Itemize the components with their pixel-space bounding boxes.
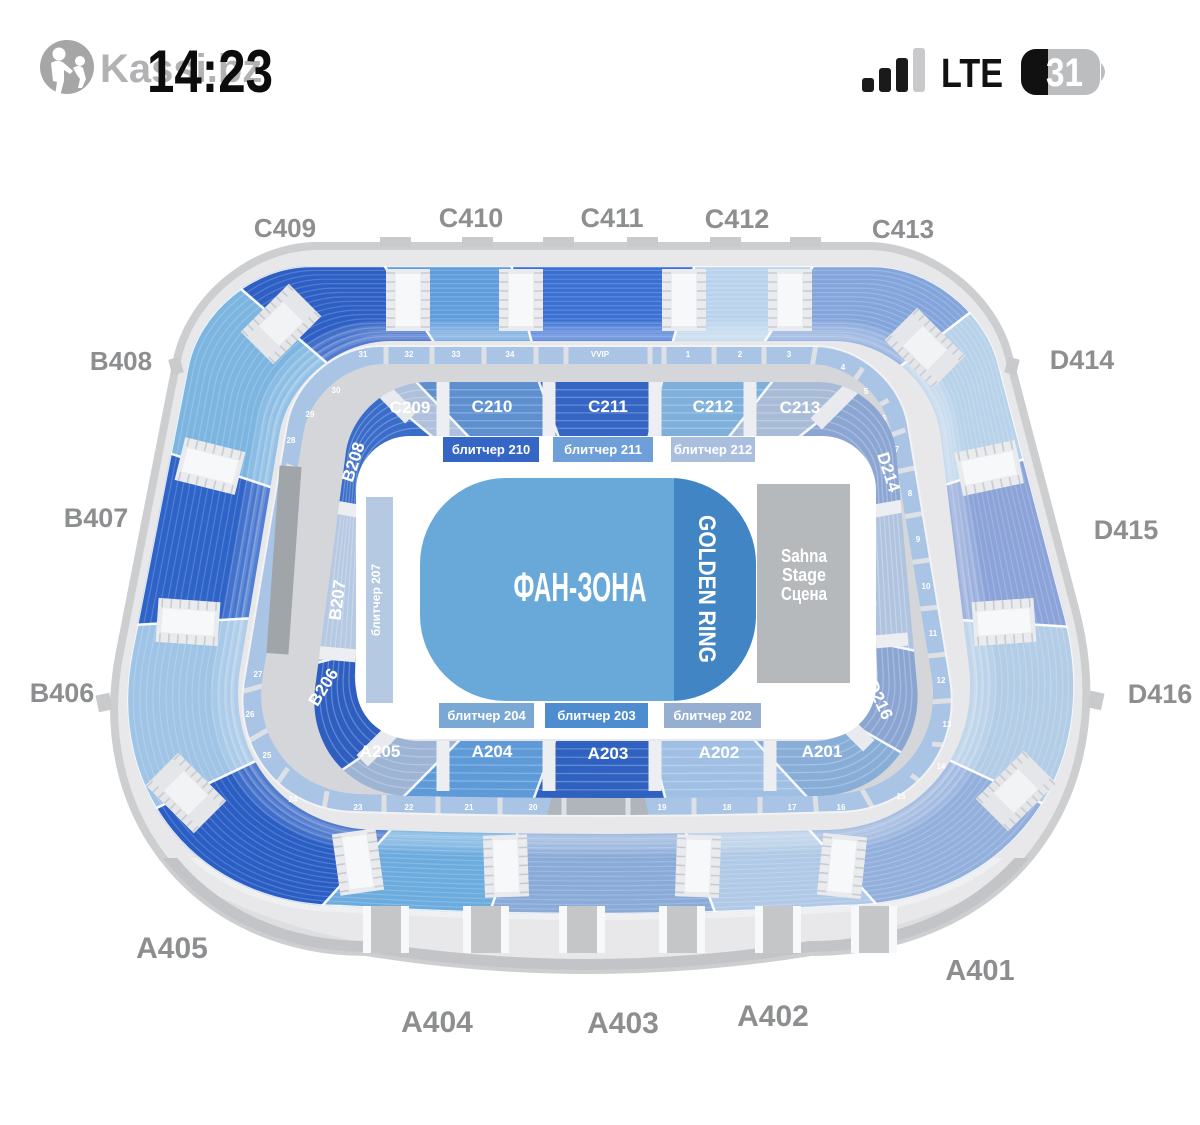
svg-text:блитчер 212: блитчер 212 (674, 442, 752, 457)
svg-text:9: 9 (916, 535, 921, 544)
svg-text:D416: D416 (1128, 679, 1193, 709)
svg-text:A201: A201 (802, 742, 843, 761)
svg-text:C410: C410 (439, 203, 504, 233)
svg-text:34: 34 (506, 350, 515, 359)
svg-text:C409: C409 (254, 213, 316, 243)
svg-text:23: 23 (354, 803, 363, 812)
svg-text:21: 21 (465, 803, 474, 812)
svg-text:14: 14 (937, 762, 946, 771)
svg-text:B408: B408 (90, 346, 152, 376)
svg-text:4: 4 (841, 363, 846, 372)
svg-text:19: 19 (658, 803, 667, 812)
svg-text:20: 20 (529, 803, 538, 812)
svg-text:28: 28 (287, 436, 296, 445)
svg-text:A204: A204 (472, 742, 513, 761)
svg-text:29: 29 (306, 410, 315, 419)
svg-text:блитчер 202: блитчер 202 (673, 708, 751, 723)
svg-text:11: 11 (929, 629, 938, 638)
svg-text:26: 26 (246, 710, 255, 719)
svg-text:15: 15 (897, 792, 906, 801)
svg-text:A401: A401 (945, 955, 1014, 987)
svg-text:C412: C412 (705, 204, 770, 234)
svg-text:8: 8 (908, 489, 913, 498)
svg-text:22: 22 (405, 803, 414, 812)
svg-text:A404: A404 (401, 1006, 473, 1039)
svg-text:Stage: Stage (782, 565, 826, 585)
svg-text:A203: A203 (588, 744, 629, 763)
svg-text:31: 31 (359, 350, 368, 359)
svg-text:C212: C212 (693, 397, 734, 416)
svg-text:A202: A202 (699, 743, 740, 762)
svg-text:31: 31 (1046, 51, 1083, 95)
svg-text:A205: A205 (360, 742, 401, 761)
svg-text:27: 27 (254, 670, 263, 679)
svg-text:C213: C213 (780, 398, 821, 417)
svg-text:B406: B406 (30, 678, 95, 708)
svg-text:14:23: 14:23 (147, 38, 273, 105)
svg-text:C411: C411 (580, 203, 643, 233)
svg-text:D215: D215 (857, 565, 879, 607)
svg-text:C209: C209 (390, 398, 431, 417)
svg-text:A403: A403 (587, 1007, 659, 1040)
svg-text:VVIP: VVIP (591, 350, 610, 359)
svg-text:B407: B407 (64, 503, 129, 533)
svg-text:32: 32 (405, 350, 414, 359)
svg-text:16: 16 (837, 803, 846, 812)
svg-text:D414: D414 (1050, 345, 1115, 375)
svg-text:блитчер 203: блитчер 203 (557, 708, 635, 723)
svg-text:33: 33 (452, 350, 461, 359)
svg-text:блитчер 211: блитчер 211 (564, 442, 642, 457)
svg-text:LTE: LTE (941, 50, 1003, 96)
svg-text:3: 3 (787, 350, 792, 359)
svg-text:C413: C413 (872, 214, 934, 244)
svg-text:1: 1 (686, 350, 691, 359)
svg-text:Сцена: Сцена (781, 584, 828, 604)
svg-text:12: 12 (937, 676, 946, 685)
svg-text:18: 18 (723, 803, 732, 812)
svg-text:A402: A402 (737, 1000, 809, 1033)
svg-text:A405: A405 (136, 932, 208, 965)
svg-text:блитчер 207: блитчер 207 (369, 564, 383, 637)
svg-text:17: 17 (788, 803, 797, 812)
svg-text:25: 25 (263, 751, 272, 760)
svg-text:блитчер 210: блитчер 210 (452, 442, 530, 457)
svg-text:GOLDEN RING: GOLDEN RING (693, 515, 720, 663)
svg-text:C210: C210 (472, 397, 513, 416)
svg-text:2: 2 (738, 350, 743, 359)
svg-text:10: 10 (922, 582, 931, 591)
svg-text:30: 30 (332, 386, 341, 395)
svg-text:13: 13 (943, 720, 952, 729)
svg-text:C211: C211 (588, 397, 628, 416)
svg-text:Sahna: Sahna (781, 546, 828, 566)
svg-text:24: 24 (289, 795, 298, 804)
svg-text:5: 5 (864, 387, 869, 396)
svg-text:блитчер 204: блитчер 204 (447, 708, 526, 723)
svg-text:ФАН-ЗОНА: ФАН-ЗОНА (514, 564, 647, 610)
svg-text:D415: D415 (1094, 515, 1159, 545)
